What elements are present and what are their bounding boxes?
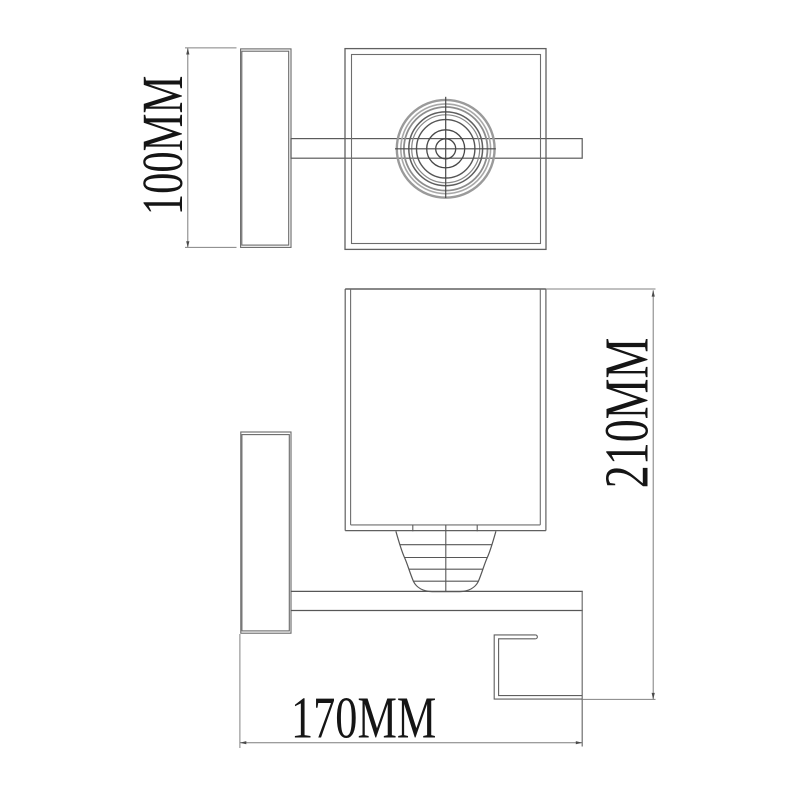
svg-text:210MM: 210MM bbox=[591, 338, 661, 489]
svg-text:170MM: 170MM bbox=[291, 687, 436, 751]
svg-text:100MM: 100MM bbox=[132, 76, 196, 216]
